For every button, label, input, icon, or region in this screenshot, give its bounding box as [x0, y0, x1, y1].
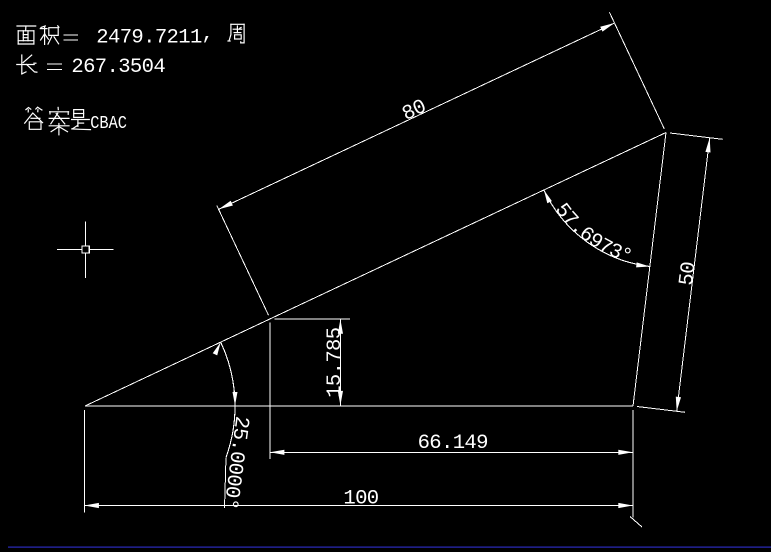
- svg-text:15.785: 15.785: [324, 327, 347, 398]
- svg-text:CBAC: CBAC: [90, 114, 127, 135]
- svg-text:,: ,: [202, 23, 214, 46]
- svg-text:267.3504: 267.3504: [71, 56, 165, 79]
- svg-text:50: 50: [676, 261, 702, 287]
- svg-text:66.149: 66.149: [418, 432, 488, 455]
- svg-text:2479.7211: 2479.7211: [96, 27, 202, 50]
- svg-text:100: 100: [343, 488, 378, 511]
